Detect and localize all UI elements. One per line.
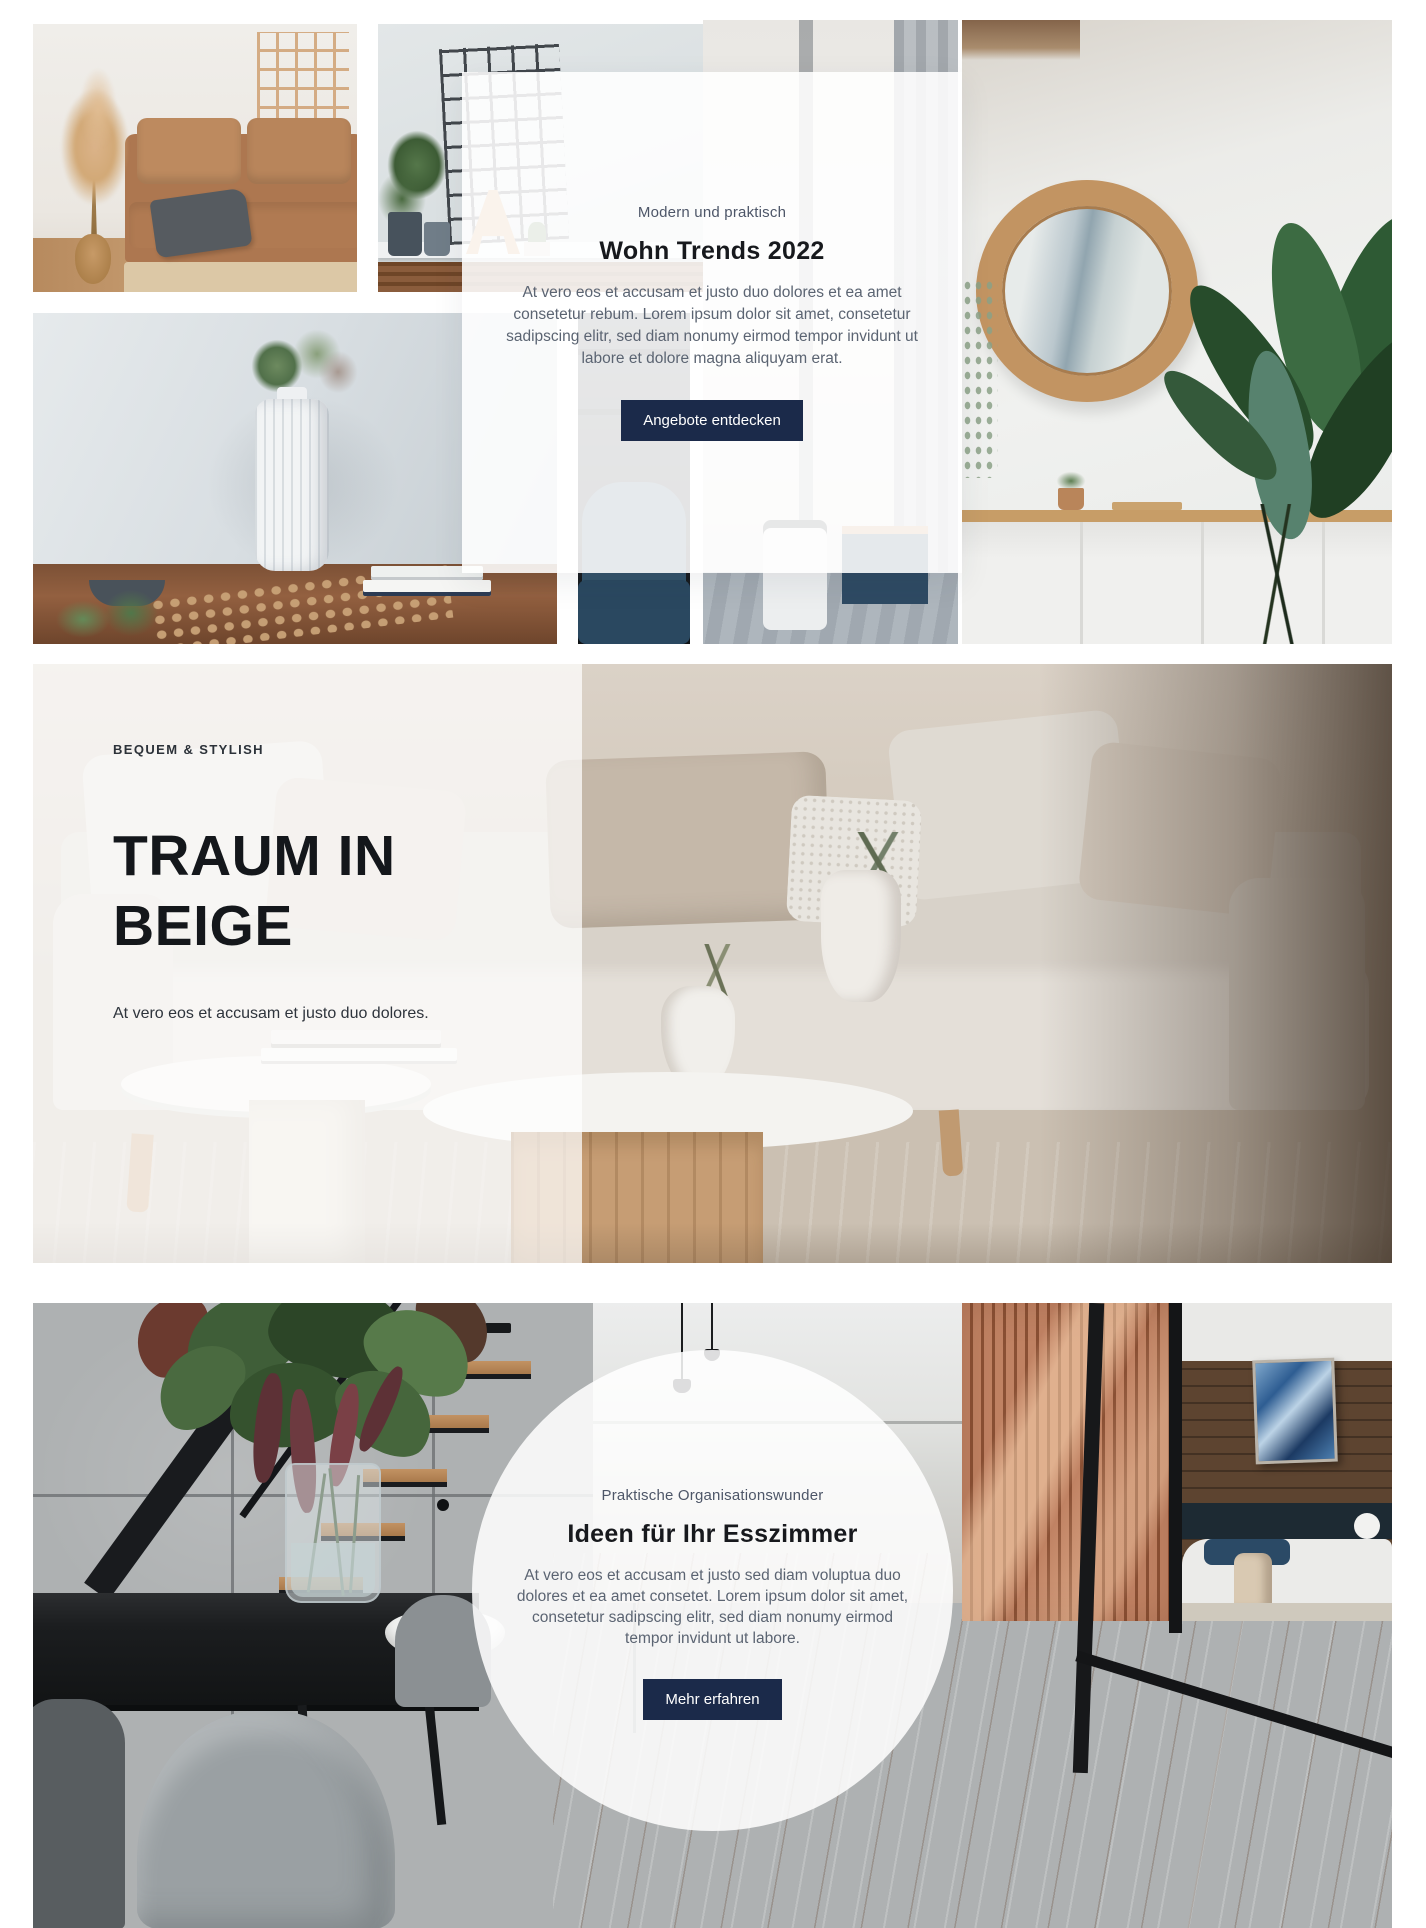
beige-text-block: BEQUEM & STYLISH TRAUM IN BEIGE At vero … xyxy=(113,742,543,1023)
glass-door-frame xyxy=(1169,1303,1182,1633)
sofa-cushion xyxy=(247,118,351,184)
plant-pot xyxy=(388,212,422,256)
velvet-chair-seat xyxy=(578,580,690,644)
door-handle xyxy=(485,1323,511,1333)
photo-sofa-pampas xyxy=(33,24,357,292)
circle-title: Ideen für Ihr Esszimmer xyxy=(567,1520,857,1549)
succulent-pot xyxy=(1058,488,1084,510)
circle-overlay-card: Praktische Organisationswunder Ideen für… xyxy=(472,1350,953,1831)
handrail-knob xyxy=(437,1499,449,1511)
wood-stool xyxy=(1234,1553,1272,1609)
succulents xyxy=(47,582,167,644)
hero-collage-section: Modern und praktisch Wohn Trends 2022 At… xyxy=(33,20,1392,644)
circle-body: At vero eos et accusam et justo sed diam… xyxy=(509,1565,917,1649)
ribbed-vase xyxy=(255,399,329,571)
angebote-entdecken-button[interactable]: Angebote entdecken xyxy=(621,400,803,441)
photo-mirror-sideboard xyxy=(962,20,1392,644)
hanging-eucalyptus xyxy=(962,278,998,478)
brown-curtain xyxy=(962,20,1080,60)
wood-tray xyxy=(1112,502,1182,510)
rug xyxy=(1182,1603,1392,1621)
hero-card-eyebrow: Modern und praktisch xyxy=(638,204,786,221)
white-vase xyxy=(821,870,901,1002)
circle-eyebrow: Praktische Organisationswunder xyxy=(602,1487,824,1504)
vase-water xyxy=(291,1543,375,1597)
blue-abstract-painting xyxy=(1252,1358,1338,1465)
ball-lamp xyxy=(1354,1513,1380,1539)
hero-card-body: At vero eos et accusam et justo duo dolo… xyxy=(506,282,918,370)
hero-card: Modern und praktisch Wohn Trends 2022 At… xyxy=(462,72,962,573)
beige-hero-section: BEQUEM & STYLISH TRAUM IN BEIGE At vero … xyxy=(33,664,1392,1263)
rug xyxy=(124,262,357,292)
beige-subtext: At vero eos et accusam et justo duo dolo… xyxy=(113,1005,543,1023)
plant-stems xyxy=(1232,504,1322,644)
right-shadow xyxy=(1039,664,1392,1263)
grey-chair xyxy=(137,1711,395,1928)
page: Modern und praktisch Wohn Trends 2022 At… xyxy=(0,0,1426,1928)
sofa-cushion xyxy=(137,118,241,184)
beige-eyebrow: BEQUEM & STYLISH xyxy=(113,742,543,757)
plant-pot xyxy=(424,222,450,256)
dark-chair xyxy=(33,1699,125,1928)
beige-title: TRAUM IN BEIGE xyxy=(113,821,443,961)
pampas-grass xyxy=(73,54,123,164)
livingroom-opening xyxy=(1182,1303,1392,1621)
pendant-cord xyxy=(711,1303,713,1351)
mehr-erfahren-button[interactable]: Mehr erfahren xyxy=(643,1679,781,1720)
book xyxy=(363,580,491,596)
glass-vase xyxy=(75,234,111,284)
round-wall-mirror xyxy=(976,180,1198,402)
sideboard-front xyxy=(962,522,1392,644)
sunlight-patch xyxy=(962,1303,1175,1621)
ceiling xyxy=(1182,1303,1392,1361)
succulent-sprig xyxy=(315,347,361,397)
esszimmer-section: Praktische Organisationswunder Ideen für… xyxy=(33,1303,1392,1928)
hero-card-title: Wohn Trends 2022 xyxy=(599,237,824,266)
